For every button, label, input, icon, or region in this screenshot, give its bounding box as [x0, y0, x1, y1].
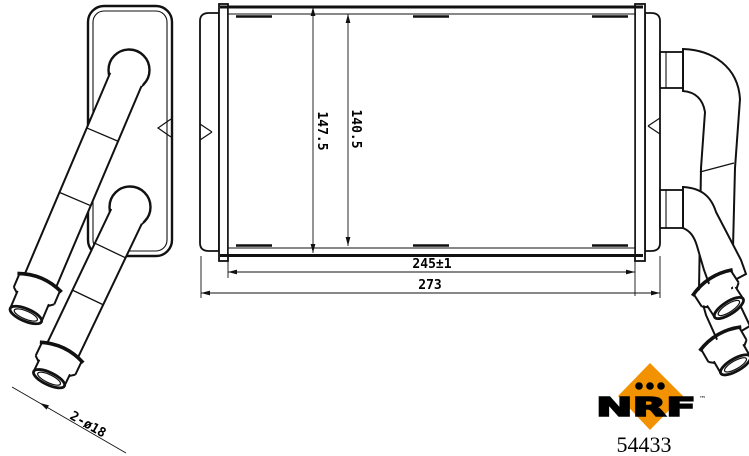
dim-core-height: 140.5 [348, 109, 363, 148]
nrf-logo: NRF ™ 54433 [596, 363, 706, 456]
dim-overall-height: 147.5 [314, 111, 329, 150]
dim-pipes: 2-ø18 [67, 409, 109, 442]
core-face [228, 7, 635, 256]
left-tank [200, 13, 219, 251]
trademark-symbol: ™ [699, 395, 706, 403]
upper-stub [660, 52, 683, 88]
hose-end-lower [697, 323, 749, 383]
dim-core-width: 245±1 [412, 257, 451, 272]
front-view [200, 4, 660, 261]
side-view [1, 6, 172, 395]
logo-wordmark: NRF [596, 393, 696, 423]
technical-drawing-canvas: 147.5 140.5 245±1 273 2-ø18 NRF ™ 54433 [0, 0, 749, 456]
dim-overall-width: 273 [418, 278, 441, 293]
outlet-hoses [660, 49, 749, 382]
logo-dots [635, 382, 665, 390]
part-number: 54433 [617, 432, 672, 456]
left-side-plate [219, 4, 228, 261]
technical-drawing: 147.5 140.5 245±1 273 2-ø18 NRF ™ 54433 [0, 0, 749, 456]
lower-stub [660, 190, 683, 228]
right-side-plate [635, 4, 645, 261]
